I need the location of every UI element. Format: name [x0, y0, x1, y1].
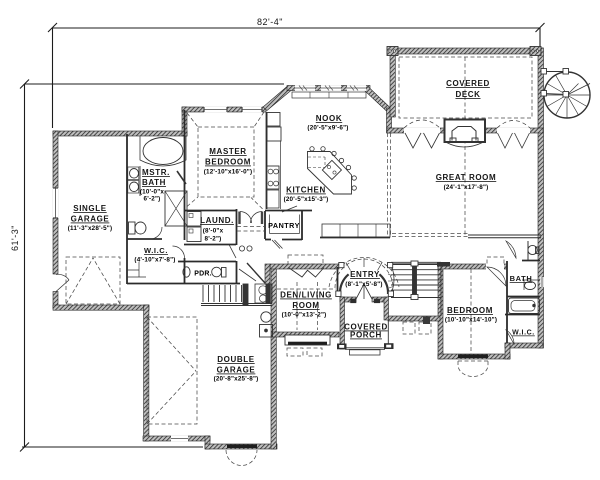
svg-text:GREAT ROOM: GREAT ROOM: [436, 173, 497, 182]
svg-text:(8'-1"x5'-8"): (8'-1"x5'-8"): [345, 281, 382, 288]
svg-text:MSTR.: MSTR.: [142, 168, 170, 177]
svg-text:ROOM: ROOM: [292, 301, 319, 310]
svg-text:(10'-0"x13'-2"): (10'-0"x13'-2"): [282, 312, 327, 319]
svg-text:W.I.C.: W.I.C.: [512, 330, 535, 337]
svg-text:(20'-5"x15'-3"): (20'-5"x15'-3"): [284, 196, 329, 203]
svg-text:(20'-5"x9'-6"): (20'-5"x9'-6"): [307, 125, 348, 132]
svg-text:(10'-10"x14'-10"): (10'-10"x14'-10"): [445, 317, 497, 324]
svg-text:(24'-1"x17'-8"): (24'-1"x17'-8"): [444, 184, 489, 191]
svg-text:W.I.C.: W.I.C.: [144, 246, 168, 255]
svg-text:(11'-3"x28'-5"): (11'-3"x28'-5"): [68, 225, 113, 232]
svg-text:GARAGE: GARAGE: [71, 215, 110, 224]
svg-text:(12'-10"x16'-0"): (12'-10"x16'-0"): [204, 169, 253, 176]
svg-text:BATH: BATH: [510, 274, 533, 283]
svg-text:8'-2"): 8'-2"): [205, 236, 222, 243]
svg-text:(20'-8"x25'-8"): (20'-8"x25'-8"): [214, 376, 259, 383]
svg-text:GARAGE: GARAGE: [217, 366, 256, 375]
svg-text:ENTRY: ENTRY: [350, 270, 380, 279]
svg-text:DOUBLE: DOUBLE: [217, 355, 254, 364]
svg-text:(8'-0"x: (8'-0"x: [203, 228, 224, 235]
svg-text:(4'-10"x7'-8"): (4'-10"x7'-8"): [134, 257, 175, 264]
svg-text:PANTRY: PANTRY: [268, 221, 300, 230]
svg-text:82'-4": 82'-4": [257, 17, 283, 27]
svg-text:KITCHEN: KITCHEN: [286, 186, 326, 195]
svg-text:BEDROOM: BEDROOM: [447, 306, 493, 315]
svg-text:6'-2"): 6'-2"): [144, 196, 161, 203]
svg-text:DEN/LIVING: DEN/LIVING: [280, 291, 332, 300]
svg-text:DECK: DECK: [455, 90, 480, 99]
svg-text:NOOK: NOOK: [316, 114, 342, 123]
svg-text:SINGLE: SINGLE: [73, 204, 106, 213]
svg-text:BATH: BATH: [142, 178, 166, 187]
svg-text:61'-3": 61'-3": [10, 225, 20, 251]
svg-text:COVERED: COVERED: [446, 79, 490, 88]
svg-text:(10'-0"x: (10'-0"x: [140, 189, 165, 196]
svg-text:PDR.: PDR.: [194, 271, 212, 278]
svg-text:BEDROOM: BEDROOM: [205, 158, 251, 167]
svg-text:PORCH: PORCH: [350, 331, 382, 340]
svg-text:LAUND.: LAUND.: [200, 216, 234, 225]
svg-text:MASTER: MASTER: [209, 147, 246, 156]
